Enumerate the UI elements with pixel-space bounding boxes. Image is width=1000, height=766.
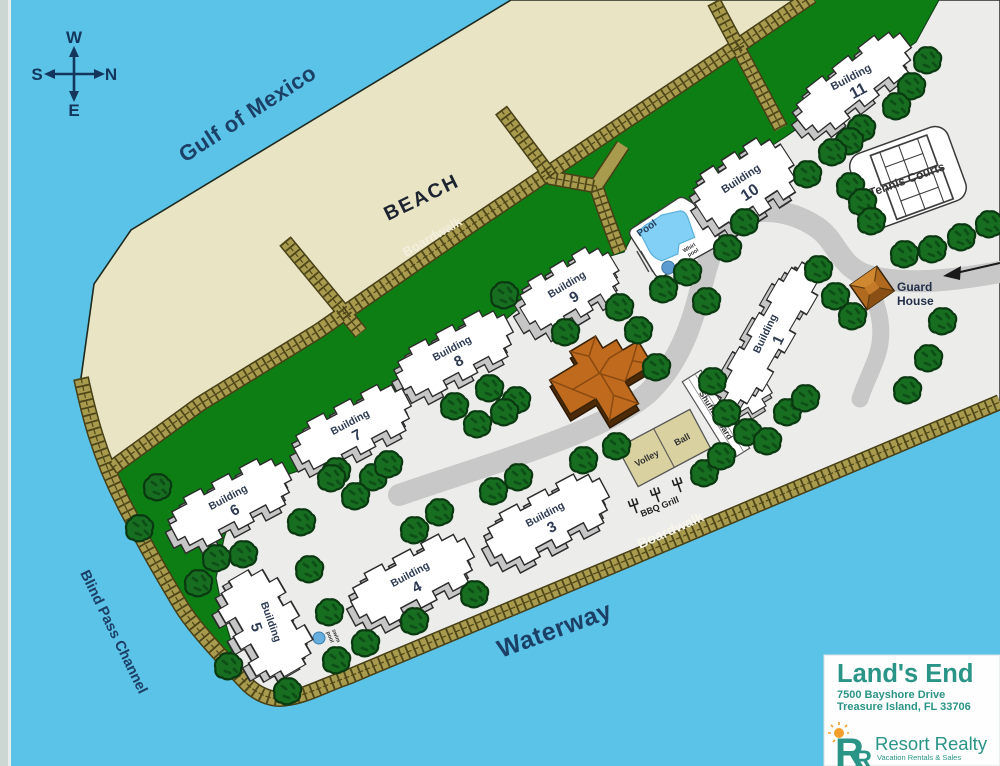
svg-text:E: E [68, 101, 79, 120]
svg-text:Land's End: Land's End [837, 660, 973, 688]
svg-text:House: House [897, 294, 934, 308]
svg-text:S: S [31, 65, 42, 84]
svg-text:N: N [105, 65, 117, 84]
svg-text:Vacation Rentals & Sales: Vacation Rentals & Sales [877, 753, 961, 762]
svg-text:R: R [854, 746, 872, 766]
svg-text:Treasure Island, FL 33706: Treasure Island, FL 33706 [837, 701, 971, 713]
svg-text:Guard: Guard [897, 280, 932, 294]
svg-text:7500 Bayshore Drive: 7500 Bayshore Drive [837, 689, 945, 701]
svg-text:W: W [66, 28, 83, 47]
svg-text:Resort Realty: Resort Realty [875, 733, 988, 754]
